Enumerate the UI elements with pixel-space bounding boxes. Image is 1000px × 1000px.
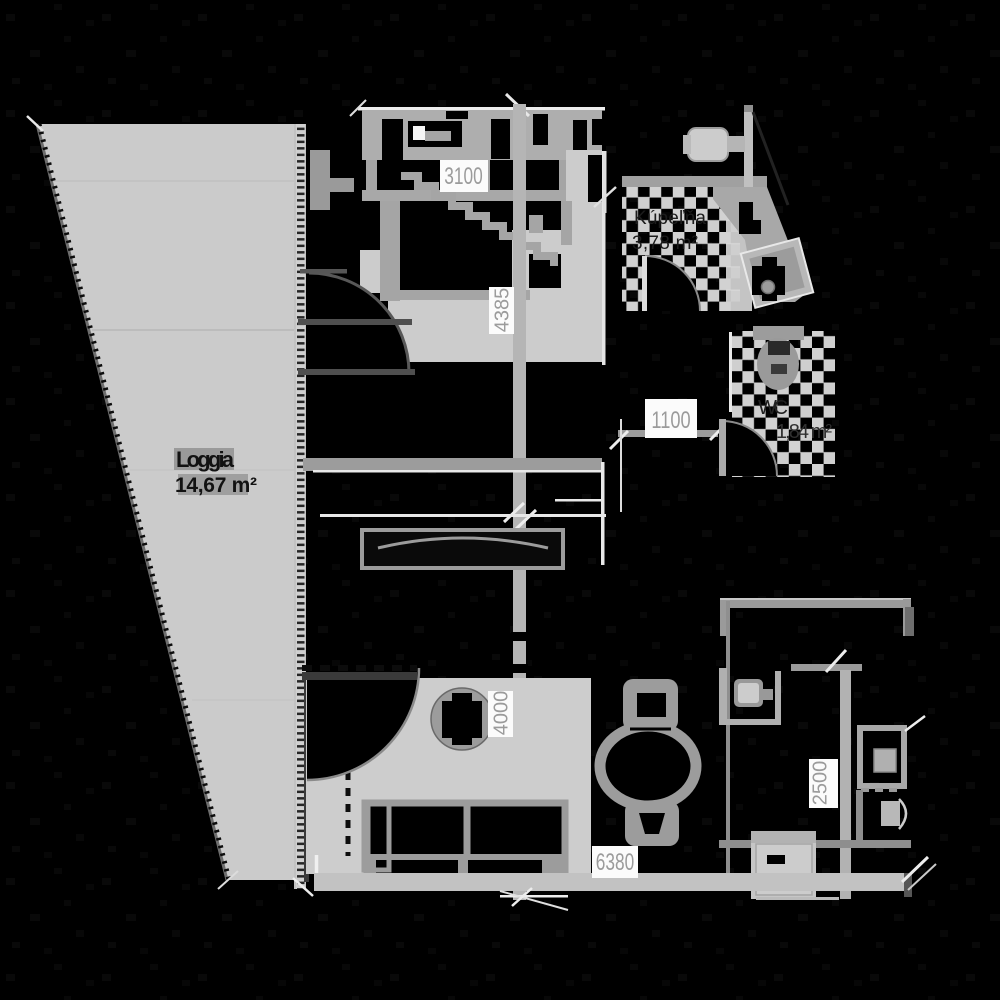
svg-text:3,78 m²: 3,78 m² [632, 233, 698, 254]
svg-text:14,67 m²: 14,67 m² [175, 474, 257, 497]
svg-text:1,84 m²: 1,84 m² [776, 421, 832, 443]
svg-text:1100: 1100 [651, 407, 690, 434]
svg-text:3100: 3100 [444, 163, 482, 189]
svg-text:WC: WC [758, 397, 788, 419]
svg-text:6380: 6380 [596, 849, 634, 875]
svg-text:4000: 4000 [490, 691, 512, 736]
svg-text:2500: 2500 [809, 761, 831, 806]
svg-text:Loggia: Loggia [176, 447, 235, 472]
svg-text:4385: 4385 [491, 288, 513, 333]
svg-text:Kúpeľňa: Kúpeľňa [634, 208, 706, 229]
